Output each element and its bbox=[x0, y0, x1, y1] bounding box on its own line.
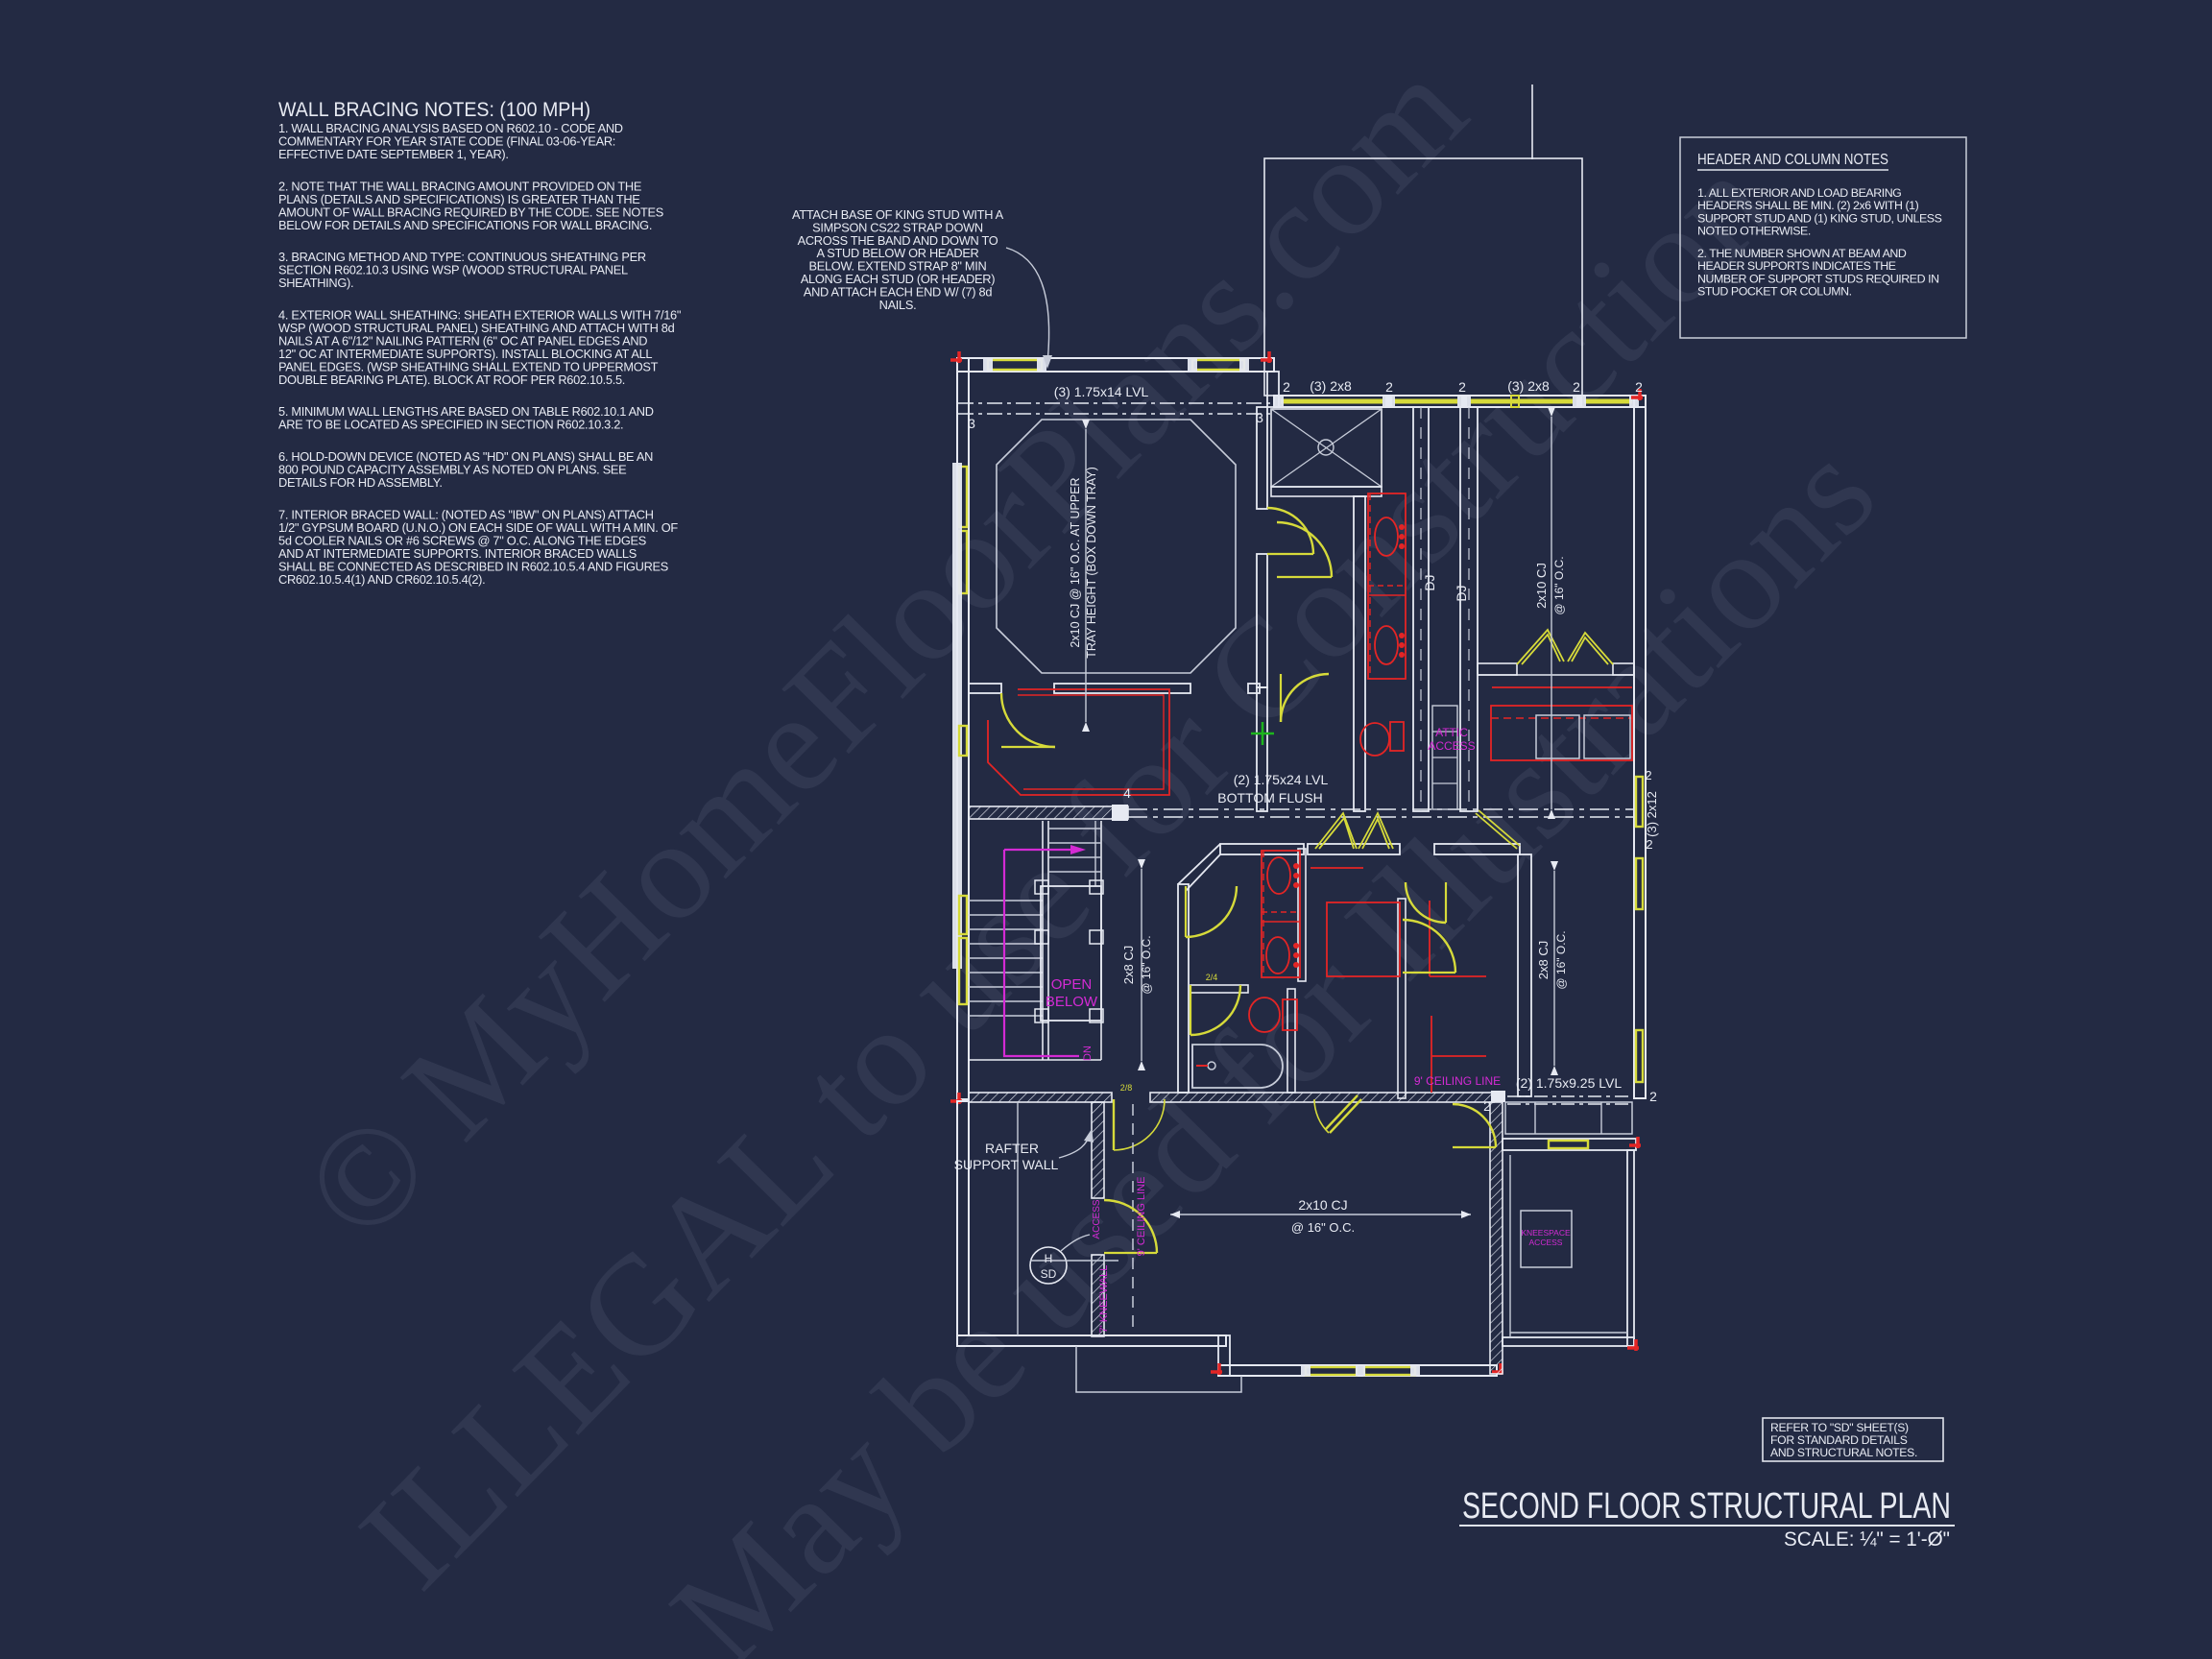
svg-text:REFER TO "SD" SHEET(S): REFER TO "SD" SHEET(S) bbox=[1770, 1421, 1909, 1434]
svg-text:2: 2 bbox=[1385, 379, 1393, 395]
svg-text:(2) 1.75x9.25 LVL: (2) 1.75x9.25 LVL bbox=[1516, 1075, 1622, 1091]
svg-text:@ 16" O.C.: @ 16" O.C. bbox=[1554, 930, 1568, 989]
svg-text:BELOW: BELOW bbox=[1046, 994, 1098, 1010]
svg-text:2/4: 2/4 bbox=[1206, 973, 1218, 982]
svg-text:7' KNEEWALL: 7' KNEEWALL bbox=[1098, 1265, 1110, 1334]
svg-text:2: 2 bbox=[1646, 837, 1652, 852]
svg-text:HEADER SUPPORTS INDICATES THE: HEADER SUPPORTS INDICATES THE bbox=[1697, 259, 1896, 273]
svg-text:ACCESS: ACCESS bbox=[1428, 739, 1475, 753]
svg-text:NAILS.: NAILS. bbox=[879, 298, 917, 312]
svg-text:4: 4 bbox=[1123, 785, 1131, 801]
svg-text:BOTTOM FLUSH: BOTTOM FLUSH bbox=[1217, 790, 1322, 805]
svg-text:CR602.10.5.4(1) AND CR602.10.5: CR602.10.5.4(1) AND CR602.10.5.4(2). bbox=[278, 572, 485, 587]
svg-text:SHEATHING).: SHEATHING). bbox=[278, 276, 353, 290]
svg-text:WALL BRACING NOTES: (100 MPH): WALL BRACING NOTES: (100 MPH) bbox=[278, 99, 590, 121]
svg-text:DJ: DJ bbox=[1422, 574, 1437, 590]
svg-text:KNEESPACE: KNEESPACE bbox=[1521, 1228, 1571, 1238]
svg-text:NUMBER OF SUPPORT STUDS REQUIR: NUMBER OF SUPPORT STUDS REQUIRED IN bbox=[1697, 272, 1939, 285]
svg-text:SECOND FLOOR STRUCTURAL PLAN: SECOND FLOOR STRUCTURAL PLAN bbox=[1462, 1486, 1951, 1527]
svg-text:2: 2 bbox=[1635, 379, 1643, 395]
svg-text:NOTED OTHERWISE.: NOTED OTHERWISE. bbox=[1697, 225, 1811, 238]
svg-text:(3) 2x8: (3) 2x8 bbox=[1507, 378, 1550, 394]
svg-text:2. THE NUMBER SHOWN AT BEAM AN: 2. THE NUMBER SHOWN AT BEAM AND bbox=[1697, 247, 1907, 260]
svg-text:SUPPORT WALL: SUPPORT WALL bbox=[954, 1157, 1059, 1172]
svg-text:2: 2 bbox=[1483, 1098, 1491, 1114]
svg-text:9' CEILING LINE: 9' CEILING LINE bbox=[1136, 1177, 1147, 1257]
svg-text:(3) 1.75x14 LVL: (3) 1.75x14 LVL bbox=[1054, 384, 1149, 399]
svg-text:(3) 2x8: (3) 2x8 bbox=[1310, 378, 1352, 394]
svg-text:2: 2 bbox=[1283, 379, 1290, 395]
svg-text:(3) 2x12: (3) 2x12 bbox=[1645, 791, 1659, 837]
svg-text:SCALE: ¼" = 1'-Ø": SCALE: ¼" = 1'-Ø" bbox=[1784, 1528, 1950, 1551]
svg-text:ARE TO BE LOCATED AS SPECIFIED: ARE TO BE LOCATED AS SPECIFIED IN SECTIO… bbox=[278, 418, 623, 432]
svg-text:DETAILS FOR HD ASSEMBLY.: DETAILS FOR HD ASSEMBLY. bbox=[278, 475, 443, 490]
svg-text:ACCESS: ACCESS bbox=[1529, 1238, 1563, 1247]
svg-text:AND STRUCTURAL NOTES.: AND STRUCTURAL NOTES. bbox=[1770, 1446, 1917, 1459]
svg-text:2x10 CJ: 2x10 CJ bbox=[1298, 1197, 1347, 1213]
svg-text:2/8: 2/8 bbox=[1120, 1083, 1133, 1093]
svg-text:2x10 CJ @ 16" O.C. AT UPPER: 2x10 CJ @ 16" O.C. AT UPPER bbox=[1069, 477, 1082, 647]
svg-text:STUD POCKET OR COLUMN.: STUD POCKET OR COLUMN. bbox=[1697, 285, 1852, 299]
svg-text:SD: SD bbox=[1041, 1267, 1057, 1281]
svg-text:2: 2 bbox=[1573, 379, 1580, 395]
svg-text:2: 2 bbox=[1645, 768, 1651, 782]
svg-text:2x8 CJ: 2x8 CJ bbox=[1121, 946, 1136, 984]
svg-text:HEADER AND COLUMN NOTES: HEADER AND COLUMN NOTES bbox=[1697, 152, 1888, 168]
svg-text:HEADERS SHALL BE MIN. (2) 2x6: HEADERS SHALL BE MIN. (2) 2x6 WITH (1) bbox=[1697, 199, 1919, 212]
svg-text:SUPPORT STUD AND (1) KING STUD: SUPPORT STUD AND (1) KING STUD, UNLESS bbox=[1697, 211, 1942, 225]
svg-text:@ 16" O.C.: @ 16" O.C. bbox=[1291, 1220, 1355, 1235]
svg-text:@ 16" O.C.: @ 16" O.C. bbox=[1552, 556, 1566, 614]
svg-text:DOUBLE BEARING PLATE). BLOCK A: DOUBLE BEARING PLATE). BLOCK AT ROOF PER… bbox=[278, 373, 625, 387]
svg-text:3: 3 bbox=[1256, 410, 1263, 425]
svg-text:2: 2 bbox=[1649, 1089, 1657, 1104]
svg-text:2x10 CJ: 2x10 CJ bbox=[1534, 563, 1549, 609]
svg-text:1. ALL EXTERIOR AND LOAD BEARI: 1. ALL EXTERIOR AND LOAD BEARING bbox=[1697, 186, 1901, 200]
svg-text:RAFTER: RAFTER bbox=[985, 1141, 1039, 1156]
svg-text:FOR STANDARD DETAILS: FOR STANDARD DETAILS bbox=[1770, 1433, 1908, 1447]
svg-text:(2) 1.75x24 LVL: (2) 1.75x24 LVL bbox=[1234, 772, 1329, 787]
svg-text:ACCESS: ACCESS bbox=[1092, 1199, 1102, 1238]
svg-text:2x8 CJ: 2x8 CJ bbox=[1536, 941, 1551, 979]
svg-text:ATTIC: ATTIC bbox=[1435, 726, 1468, 739]
svg-text:H: H bbox=[1045, 1252, 1053, 1265]
svg-text:9' CEILING LINE: 9' CEILING LINE bbox=[1414, 1074, 1501, 1088]
svg-text:TRAY HEIGHT (BOX DOWN TRAY): TRAY HEIGHT (BOX DOWN TRAY) bbox=[1085, 467, 1098, 659]
svg-text:OPEN: OPEN bbox=[1051, 976, 1093, 993]
svg-text:DN: DN bbox=[1082, 1046, 1094, 1061]
svg-text:@ 16" O.C.: @ 16" O.C. bbox=[1140, 935, 1153, 994]
svg-text:3: 3 bbox=[968, 416, 975, 431]
svg-text:EFFECTIVE DATE SEPTEMBER 1, YE: EFFECTIVE DATE SEPTEMBER 1, YEAR). bbox=[278, 147, 509, 161]
svg-text:2: 2 bbox=[1458, 379, 1466, 395]
svg-text:BELOW FOR DETAILS AND SPECIFIC: BELOW FOR DETAILS AND SPECIFICATIONS FOR… bbox=[278, 218, 652, 232]
svg-text:DJ: DJ bbox=[1454, 585, 1469, 601]
